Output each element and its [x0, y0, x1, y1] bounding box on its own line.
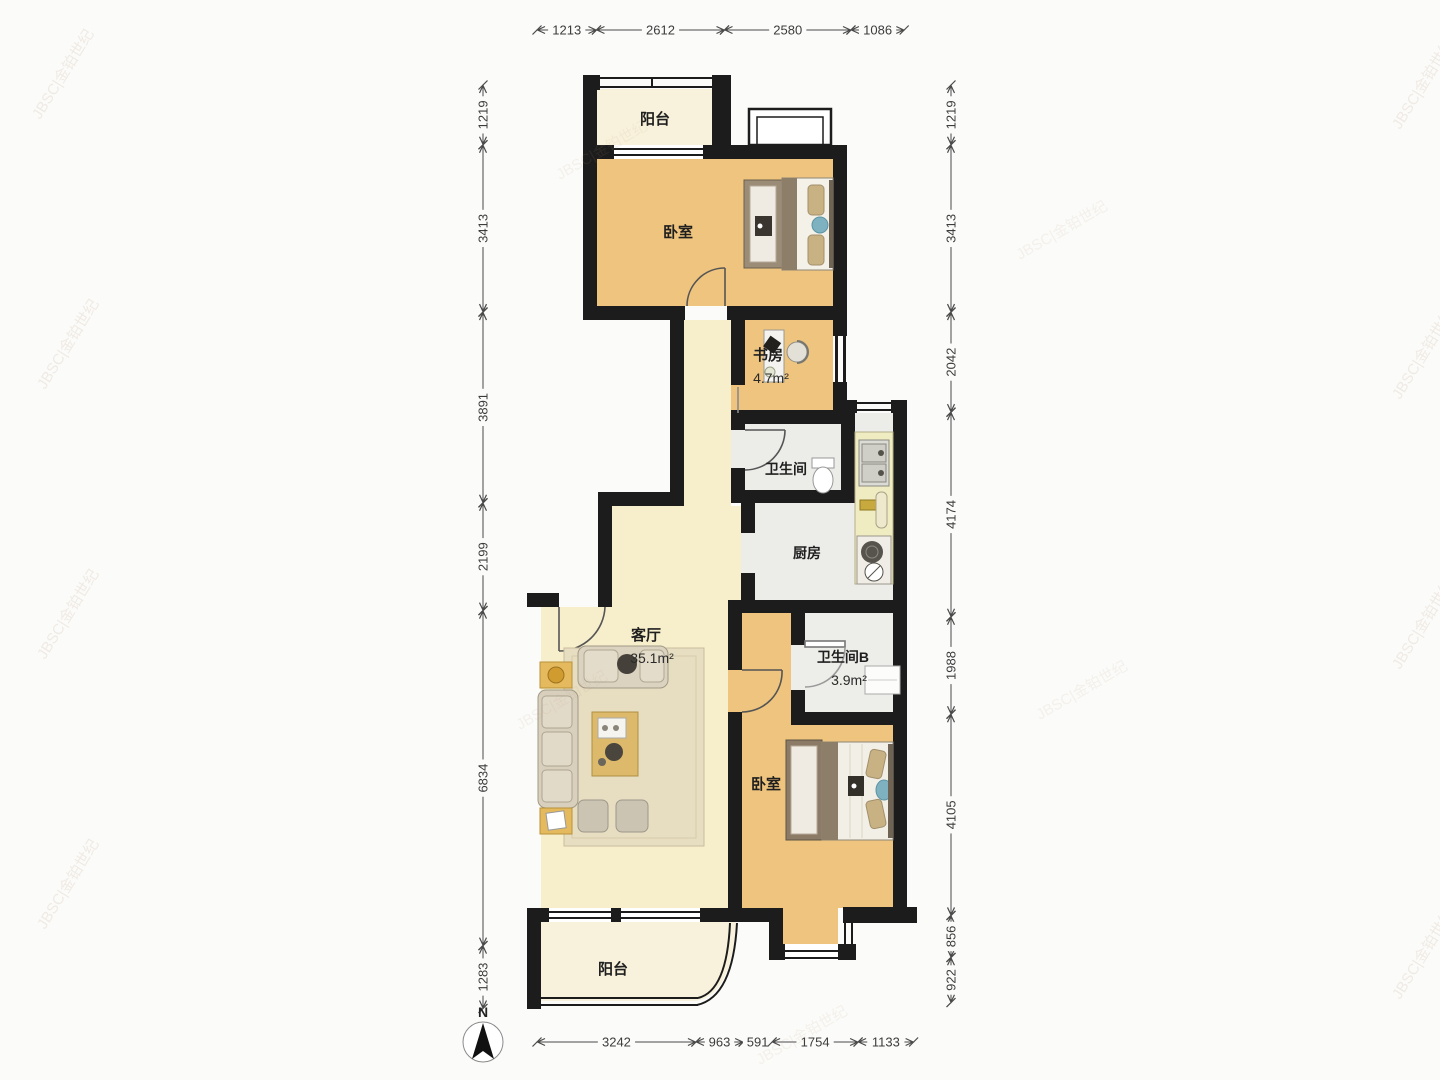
table-lamp: [548, 667, 564, 683]
balcony-bottom-window: [541, 1004, 698, 1006]
balcony-bottom-slider: [549, 911, 700, 913]
furniture-bedroom-top: [744, 178, 833, 270]
sofa-cushion: [542, 732, 572, 766]
study-window: [835, 336, 838, 382]
bed-runner: [782, 178, 797, 270]
nightstand-lamp: [852, 784, 857, 789]
cup: [613, 725, 619, 731]
headboard: [888, 744, 893, 838]
nightstand-lamp: [758, 224, 763, 229]
bathroom-b-door-gap: [791, 645, 805, 690]
furniture-kitchen: [855, 432, 893, 584]
kitchen-door-gap: [741, 533, 755, 573]
dimension-label: 3891: [476, 393, 491, 422]
wall: [605, 593, 612, 607]
watermark-text: JBSC|金铂世纪: [1389, 306, 1440, 402]
wardrobe-panel: [791, 746, 817, 834]
wall: [728, 712, 742, 922]
wall: [843, 907, 917, 923]
dimension-label: 1086: [863, 23, 892, 38]
counter-item: [860, 500, 876, 510]
floor-plan-drawing: 阳台 卧室 书房 4.7m² 卫生间 厨房 客厅 35.1m² 卫生间B 3.9…: [0, 0, 1440, 1080]
furniture-living-room: [538, 646, 704, 846]
ottoman: [578, 800, 608, 832]
book: [546, 811, 566, 830]
dimension-label: 856: [944, 926, 959, 948]
balcony-bottom-slider-sill: [549, 908, 700, 922]
watermark-text: JBSC|金铂世纪: [1389, 576, 1440, 672]
wall: [611, 908, 621, 922]
wall: [841, 413, 855, 490]
dimension-label: 922: [944, 969, 959, 991]
wall: [791, 613, 805, 645]
balcony-bottom-window: [541, 997, 698, 999]
dimension-label: 6834: [476, 764, 491, 793]
sofa-cushion: [542, 770, 572, 802]
dimension-label: 1219: [944, 100, 959, 129]
watermark-text: JBSC|金铂世纪: [1389, 36, 1440, 132]
watermark-text: JBSC|金铂世纪: [34, 836, 103, 932]
bedroom-bay-window-side: [851, 922, 853, 946]
kitchen-label: 厨房: [793, 545, 821, 561]
balcony-top-window: [597, 86, 712, 88]
burner: [861, 541, 883, 563]
kitchen-window: [857, 409, 891, 411]
dimension-label: 3413: [476, 214, 491, 243]
dimension-label: 2042: [944, 348, 959, 377]
balcony-top-slider: [614, 154, 703, 156]
study-window: [843, 336, 846, 382]
bedroom-top-label: 卧室: [663, 223, 693, 241]
window-mullion: [651, 77, 653, 88]
study-area: 4.7m²: [753, 370, 789, 386]
teapot: [605, 743, 623, 761]
dimension-label: 3413: [944, 214, 959, 243]
wall: [731, 490, 855, 503]
round-pillow: [812, 217, 828, 233]
dimension-label: 1133: [872, 1035, 900, 1050]
dimension-label: 1988: [944, 651, 959, 680]
bedroom-bay-window: [785, 957, 840, 959]
ottoman: [616, 800, 648, 832]
wall: [893, 400, 907, 613]
pillow: [808, 185, 824, 215]
toilet-bowl: [813, 467, 833, 493]
wall: [791, 712, 907, 725]
sink-drain: [878, 470, 884, 476]
balcony-bottom-floor: [541, 922, 736, 1001]
balcony-bottom-slider: [549, 917, 700, 919]
wall: [833, 145, 847, 320]
balcony-top-slider: [614, 148, 703, 150]
dimension-label: 4174: [944, 500, 959, 529]
sink-drain: [878, 450, 884, 456]
wall: [728, 613, 742, 670]
dimension-label: 963: [709, 1035, 731, 1050]
bay-window-top-floor: [750, 110, 830, 145]
wall: [700, 908, 741, 922]
floor-plan-page: 阳台 卧室 书房 4.7m² 卫生间 厨房 客厅 35.1m² 卫生间B 3.9…: [0, 0, 1440, 1080]
dimension-label: 1283: [476, 963, 491, 992]
watermark-text: JBSC|金铂世纪: [1034, 658, 1131, 724]
balcony-bottom-label: 阳台: [598, 960, 628, 978]
bedroom-bay-window: [785, 950, 840, 952]
wall: [527, 908, 541, 1009]
wall: [833, 320, 847, 336]
wall: [769, 944, 785, 960]
wall: [728, 600, 907, 613]
wall: [731, 410, 847, 424]
study-floor: [745, 320, 833, 410]
wall: [598, 492, 612, 607]
bedroom-bottom-label: 卧室: [751, 775, 781, 793]
dimension-label: 1213: [552, 23, 581, 38]
bedroom-bottom-door-gap: [728, 670, 742, 712]
bedroom-bay-floor: [783, 908, 838, 950]
wall: [838, 944, 856, 960]
balcony-top-window: [597, 77, 712, 79]
headboard: [829, 180, 833, 268]
bed-runner: [822, 742, 838, 840]
wall: [727, 306, 847, 320]
watermark-text: JBSC|金铂世纪: [1389, 906, 1440, 1002]
dimension-label: 3242: [602, 1035, 631, 1050]
bedroom-bay-window-side: [844, 922, 846, 946]
bathroom-b-area: 3.9m²: [831, 672, 867, 688]
wall: [583, 306, 685, 320]
compass-north-label: N: [478, 1004, 488, 1020]
wall: [741, 503, 755, 533]
wall: [847, 400, 857, 413]
hallway-floor-lower: [612, 506, 741, 607]
wall: [703, 145, 847, 159]
study-label: 书房: [753, 346, 783, 364]
dimension-label: 2580: [773, 23, 802, 38]
living-room-label: 客厅: [630, 626, 661, 644]
watermark-text: JBSC|金铂世纪: [1014, 198, 1111, 264]
kitchen-window: [857, 402, 891, 404]
wall: [670, 320, 684, 506]
dimension-label: 1219: [476, 100, 491, 129]
compass: N: [463, 1004, 503, 1062]
pillow: [808, 235, 824, 265]
wall: [583, 75, 597, 320]
furniture-bedroom-bottom: [786, 740, 893, 840]
cup: [602, 725, 608, 731]
hallway-floor: [684, 320, 731, 506]
wall: [893, 613, 907, 907]
wall: [712, 75, 731, 152]
living-room-area: 35.1m²: [630, 650, 674, 666]
wall: [731, 320, 745, 385]
bathroom-door-gap: [731, 430, 745, 468]
dimension-label: 4105: [944, 800, 959, 829]
counter-board: [876, 492, 887, 528]
wall: [791, 690, 805, 712]
bathroom-label: 卫生间: [765, 461, 807, 477]
bathroom-b-label: 卫生间B: [817, 649, 869, 665]
dimension-label: 2612: [646, 23, 675, 38]
watermark-text: JBSC|金铂世纪: [34, 566, 103, 662]
cup: [598, 758, 606, 766]
desk-chair: [787, 342, 807, 362]
watermark-text: JBSC|金铂世纪: [29, 26, 98, 122]
wall: [527, 593, 559, 607]
furniture-bathroom-b: [865, 666, 900, 694]
dimension-label: 2199: [476, 542, 491, 571]
bathroom-b-door-leaf: [805, 641, 845, 647]
balcony-top-slider-sill: [614, 145, 703, 159]
watermark-text: JBSC|金铂世纪: [34, 296, 103, 392]
furniture-bathroom: [812, 458, 834, 493]
